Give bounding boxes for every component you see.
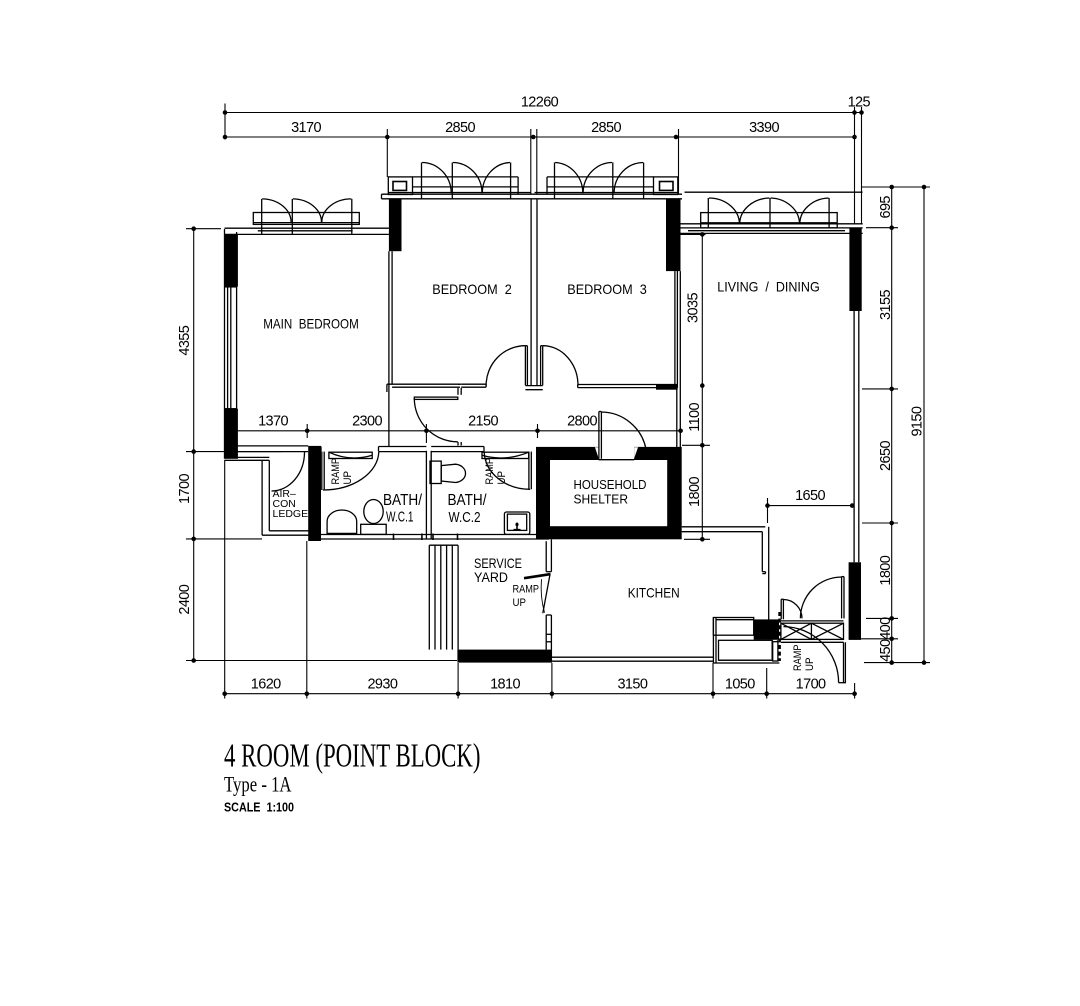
- svg-text:4355: 4355: [177, 325, 193, 355]
- svg-text:400: 400: [878, 617, 894, 640]
- svg-text:3170: 3170: [291, 120, 321, 136]
- svg-text:Type - 1A: Type - 1A: [224, 772, 292, 797]
- svg-text:1700: 1700: [177, 474, 193, 504]
- svg-text:YARD: YARD: [474, 569, 508, 585]
- svg-text:SHELTER: SHELTER: [574, 492, 629, 507]
- svg-text:RAMP: RAMP: [792, 645, 804, 672]
- svg-text:SCALE 1:100: SCALE 1:100: [224, 800, 294, 815]
- svg-text:1810: 1810: [490, 677, 520, 693]
- svg-text:MAIN BEDROOM: MAIN BEDROOM: [263, 316, 359, 332]
- svg-text:2850: 2850: [591, 120, 621, 136]
- svg-text:2400: 2400: [177, 584, 193, 614]
- svg-text:LIVING / DINING: LIVING / DINING: [717, 279, 820, 295]
- svg-text:3150: 3150: [617, 677, 647, 693]
- svg-text:1050: 1050: [725, 677, 755, 693]
- svg-text:RAMP: RAMP: [330, 458, 342, 485]
- svg-text:RAMP: RAMP: [513, 584, 540, 596]
- svg-text:W.C.2: W.C.2: [449, 510, 481, 526]
- svg-text:W.C.1: W.C.1: [386, 510, 414, 526]
- svg-text:3390: 3390: [749, 120, 779, 136]
- svg-text:1800: 1800: [687, 477, 703, 507]
- svg-text:695: 695: [878, 196, 894, 219]
- svg-text:125: 125: [848, 95, 871, 111]
- svg-text:BEDROOM 3: BEDROOM 3: [567, 281, 647, 297]
- svg-text:9150: 9150: [910, 406, 926, 436]
- svg-text:UP: UP: [342, 471, 354, 485]
- svg-text:2150: 2150: [468, 413, 498, 429]
- svg-text:1650: 1650: [795, 488, 825, 504]
- svg-text:BEDROOM 2: BEDROOM 2: [432, 281, 512, 297]
- svg-text:450: 450: [878, 639, 894, 662]
- svg-text:1620: 1620: [251, 677, 281, 693]
- svg-text:1370: 1370: [258, 413, 288, 429]
- svg-text:1700: 1700: [796, 677, 826, 693]
- svg-text:UP: UP: [496, 471, 508, 485]
- svg-text:12260: 12260: [521, 95, 559, 111]
- svg-text:3155: 3155: [878, 290, 894, 320]
- svg-text:BATH/: BATH/: [383, 492, 422, 509]
- svg-text:KITCHEN: KITCHEN: [628, 585, 680, 601]
- svg-text:HOUSEHOLD: HOUSEHOLD: [574, 477, 647, 492]
- svg-text:UP: UP: [804, 658, 816, 672]
- svg-text:2930: 2930: [367, 677, 397, 693]
- svg-text:2300: 2300: [352, 413, 382, 429]
- svg-text:RAMP: RAMP: [484, 458, 496, 485]
- svg-text:1800: 1800: [878, 555, 894, 585]
- svg-text:1100: 1100: [687, 402, 703, 431]
- svg-text:UP: UP: [513, 597, 527, 609]
- svg-text:BATH/: BATH/: [448, 492, 487, 509]
- svg-text:3035: 3035: [686, 293, 702, 323]
- svg-text:2800: 2800: [567, 413, 597, 429]
- svg-text:2650: 2650: [878, 441, 894, 471]
- svg-text:LEDGE: LEDGE: [273, 508, 309, 520]
- svg-text:2850: 2850: [445, 120, 475, 136]
- svg-text:4 ROOM (POINT BLOCK): 4 ROOM (POINT BLOCK): [224, 738, 481, 775]
